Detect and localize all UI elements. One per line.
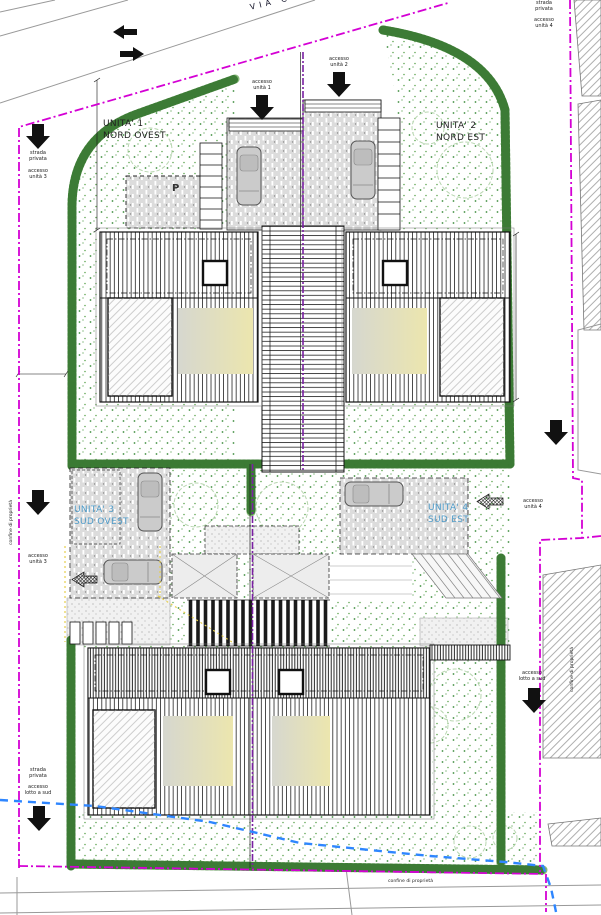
label-line: unità 3	[22, 175, 54, 181]
skylight	[203, 261, 227, 285]
unit1-line1: UNITA' 1	[103, 119, 166, 131]
access-unit3-mid-arrow	[26, 490, 50, 515]
small-stairs	[70, 622, 132, 644]
label-line: privata	[22, 157, 54, 163]
access-lotto-sud-right-arrow	[522, 688, 546, 713]
unit3-line2: SUD OVEST	[74, 517, 129, 529]
unit1-label: UNITA' 1 NORD OVEST	[103, 119, 166, 142]
label-line: unità 3	[22, 560, 54, 566]
label-strada-privata-ne: strada privata	[528, 1, 560, 13]
site-plan: VIA CEN UNITA' 1 NORD OVEST UNITA' 2 NOR…	[0, 0, 601, 915]
label-accesso-unita-1: accesso unità 1	[240, 80, 284, 92]
label-accesso-unita-4-mid: accesso unità 4	[516, 499, 550, 511]
label-line: privata	[22, 774, 54, 780]
site-plan-drawing	[0, 0, 601, 915]
unit2-line1: UNITA' 2	[436, 121, 485, 133]
parking-label: P	[172, 183, 179, 195]
label-accesso-unita-2: accesso unità 2	[317, 57, 361, 69]
unit4-line2: SUD EST	[428, 515, 469, 527]
access-lotto-sud-left-arrow	[27, 806, 51, 831]
unit4-line1: UNITA' 4	[428, 503, 469, 515]
label-strada-privata-nw: strada privata	[22, 151, 54, 163]
label-line: privata	[528, 7, 560, 13]
label-confine-left: confine di proprietà	[9, 500, 14, 545]
building-unit1-roof	[96, 228, 262, 406]
pergola-deck	[187, 600, 330, 646]
label-line: unità 1	[240, 86, 284, 92]
patio-glass	[178, 308, 253, 374]
unit2-line2: NORD EST	[436, 133, 485, 145]
label-line: lotto a sud	[16, 791, 60, 797]
label-line: lotto a sud	[512, 677, 552, 683]
access-unit2-arrow	[327, 72, 351, 97]
unit2-label: UNITA' 2 NORD EST	[436, 121, 485, 144]
patio-glass	[272, 716, 330, 786]
label-accesso-lotto-sud-right: accesso lotto a sud	[512, 671, 552, 683]
building-unit2-roof	[342, 228, 514, 406]
label-accesso-unita-4-ne: accesso unità 4	[528, 18, 560, 30]
unit3-line1: UNITA' 3	[74, 505, 129, 517]
label-confine-right: confine di proprietà	[570, 647, 575, 692]
label-line: unità 2	[317, 63, 361, 69]
label-line: unità 4	[528, 24, 560, 30]
unit3-label: UNITA' 3 SUD OVEST	[74, 505, 129, 528]
skylight	[206, 670, 230, 694]
label-line: unità 4	[516, 505, 550, 511]
skylight	[279, 670, 303, 694]
label-accesso-lotto-sud-left: accesso lotto a sud	[16, 785, 60, 797]
access-unit3-top-arrow	[26, 124, 50, 149]
access-unit4-right-arrow	[544, 420, 568, 445]
label-confine-bottom: confine di proprietà	[388, 879, 433, 884]
label-accesso-unita-3-mid: accesso unità 3	[22, 554, 54, 566]
patio-glass	[163, 716, 233, 786]
patio-glass	[352, 308, 427, 374]
unit4-label: UNITA' 4 SUD EST	[428, 503, 469, 526]
access-unit1-arrow	[250, 95, 274, 120]
label-accesso-unita-3-nw: accesso unità 3	[22, 169, 54, 181]
unit1-line2: NORD OVEST	[103, 131, 166, 143]
label-strada-privata-sw: strada privata	[22, 768, 54, 780]
road-direction-left-arrow	[113, 25, 137, 39]
skylight	[383, 261, 407, 285]
road-direction-right-arrow	[120, 47, 144, 61]
